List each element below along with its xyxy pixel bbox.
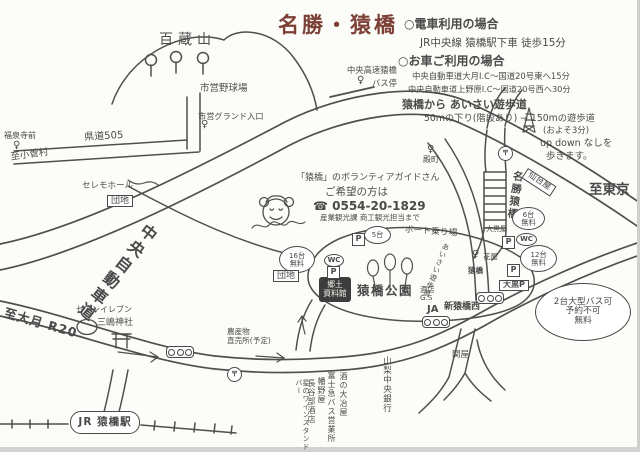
highway-busstop-label: 中央高速猿橋: [347, 66, 397, 75]
mountain-name-label: 百蔵山: [159, 33, 216, 49]
daikokuya-shop-label: 大黒屋: [486, 226, 507, 234]
park-access-road: [296, 300, 325, 351]
ballpark-label: 市営野球場: [200, 84, 248, 95]
jr-saruhashi-station-label: JR 猿橋駅: [70, 411, 140, 434]
shop-list-fujikyu-bus-office: 富士急バス営業所: [327, 371, 335, 443]
traffic-signal-icon: [476, 292, 504, 304]
info-walkway-note2: 歩きます。: [546, 152, 593, 163]
info-walkway-note1: up down なしを: [540, 139, 612, 150]
info-car-line1: 中央自動車道大月I.C～国道20号東へ15分: [412, 72, 570, 81]
info-walkway-time: (およそ3分): [543, 127, 589, 137]
parking-icon: P: [327, 266, 340, 279]
ballpark-road: [187, 93, 200, 151]
bus-stop-icon: ♀: [357, 75, 364, 86]
bus-stop-icon: ♀: [427, 144, 434, 155]
bus-stop-icon: ♀: [472, 249, 479, 260]
shin-saruhashi-west-label: 新猿橋西: [444, 302, 480, 312]
ceremony-hall-label: セレモホール: [82, 182, 133, 192]
bus-parking-bubble: 2台大型バス可 予約不可 無料: [535, 283, 631, 341]
traffic-signal-icon: [166, 346, 194, 358]
wc-icon: WC: [324, 254, 344, 267]
volunteer-guide-line1: 「猿橋」のボランティアガイドさん: [296, 173, 439, 183]
danchi-west-label: 団地: [107, 195, 133, 207]
daikoku-parking-label: 大黒P: [499, 280, 529, 291]
parking-5-bubble: 5台: [364, 226, 391, 244]
info-walkway-header: 猿橋から あいさい遊歩道: [402, 99, 527, 111]
bus-stop-icon: ♀: [13, 140, 20, 151]
volunteer-guide-dept: 産業観光課 商工観光担当まで: [320, 214, 420, 222]
parking-6-bubble: 6台 無料: [512, 207, 545, 230]
folk-museum-label: 郷土 資料館: [319, 277, 351, 302]
post-office-icon: 〒: [227, 367, 242, 382]
mountain-trees-icon: [146, 52, 209, 77]
to-tokyo-label: 至東京: [589, 183, 630, 198]
danchi-center-label: 団地: [273, 270, 299, 282]
map-title: 名勝・猿橋: [278, 14, 398, 38]
info-walkway-line: 50mの下り(階段あり) → 150mの遊歩道: [424, 114, 595, 124]
south-fork-road: [419, 329, 505, 413]
parking-16-bubble: 16台 無料: [279, 246, 315, 273]
wc-icon: WC: [516, 233, 537, 246]
parking-12-bubble: 12台 無料: [520, 245, 557, 272]
parking-icon: P: [502, 236, 515, 249]
monkey-mascot-icon: [252, 196, 305, 228]
shop-list-wine-stand-bar: 星のワインスタンドバー: [295, 379, 309, 452]
mishima-shrine-label: 三嶋神社: [97, 318, 133, 328]
parking-icon: P: [507, 264, 520, 277]
flower-shop-label: 花屋: [483, 253, 498, 261]
parking-icon: P: [352, 233, 365, 246]
seven-eleven-label: セブンイレブン: [76, 306, 132, 315]
hand-drawn-map: 名勝・猿橋百蔵山○電車利用の場合JR中央線 猿橋駅下車 徒歩15分○お車ご利用の…: [0, 0, 640, 452]
info-train-header: ○電車利用の場合: [404, 18, 498, 31]
saruhashi-park-label: 猿橋公園: [357, 284, 413, 298]
sekiya-label: 関屋: [452, 351, 469, 361]
tonomachi-busstop-label: 殿町: [423, 156, 439, 165]
traffic-signal-icon: [422, 316, 450, 328]
shop-list-sake-ohya: 酒の大冶屋: [339, 372, 347, 417]
farm-stand-label: 農産物 直売所(予定): [227, 328, 271, 345]
highway-busstop-label2: バス停: [372, 79, 397, 88]
volunteer-guide-line2: ご希望の方は: [325, 187, 388, 199]
volunteer-guide-phone: ☎ 0554-20-1829: [313, 200, 426, 213]
yamanashi-chuo-bank-label: 山梨中央銀行: [382, 356, 391, 413]
post-office-icon: 〒: [498, 146, 513, 161]
info-car-header: ○お車ご利用の場合: [398, 55, 504, 68]
prefectural-road-505-label: 県道505: [84, 130, 124, 143]
scan-edge-bottom: [0, 447, 640, 452]
station-road: [104, 370, 128, 412]
info-train-line: JR中央線 猿橋駅下車 徒歩15分: [420, 38, 566, 50]
info-car-line2: 中央自動車道上野原I.C～国道20号西へ30分: [408, 85, 571, 94]
ja-label: JA: [427, 304, 438, 315]
bus-stop-icon: ♀: [201, 119, 208, 130]
shop-list-hatanoya: 幡野屋: [317, 377, 325, 404]
saruhashi-busstop-label: 猿橋: [468, 267, 483, 275]
